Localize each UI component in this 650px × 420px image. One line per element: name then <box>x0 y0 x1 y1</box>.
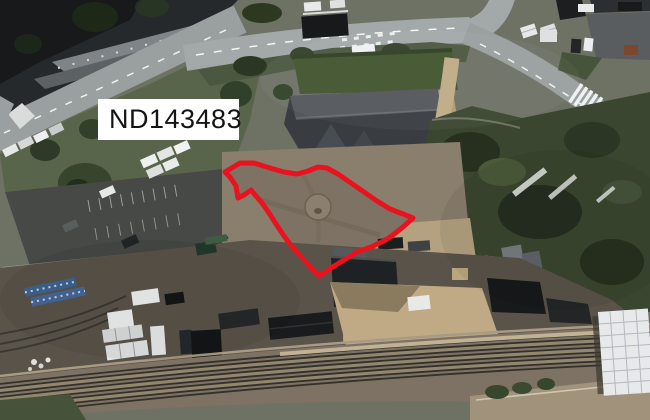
scaffold-building <box>592 309 650 397</box>
car <box>618 2 642 11</box>
car <box>408 240 431 252</box>
car <box>571 39 582 54</box>
container <box>624 45 638 55</box>
van <box>330 0 346 8</box>
grid-reference-label: ND143483 <box>98 99 239 140</box>
car <box>583 38 593 52</box>
flat-roof-building <box>540 30 557 42</box>
circular-feature <box>305 194 331 220</box>
aerial-photo-canvas <box>0 0 650 420</box>
aerial-map: ND143483 <box>0 0 650 420</box>
machine <box>407 295 430 311</box>
van <box>578 4 594 12</box>
van <box>304 1 322 11</box>
